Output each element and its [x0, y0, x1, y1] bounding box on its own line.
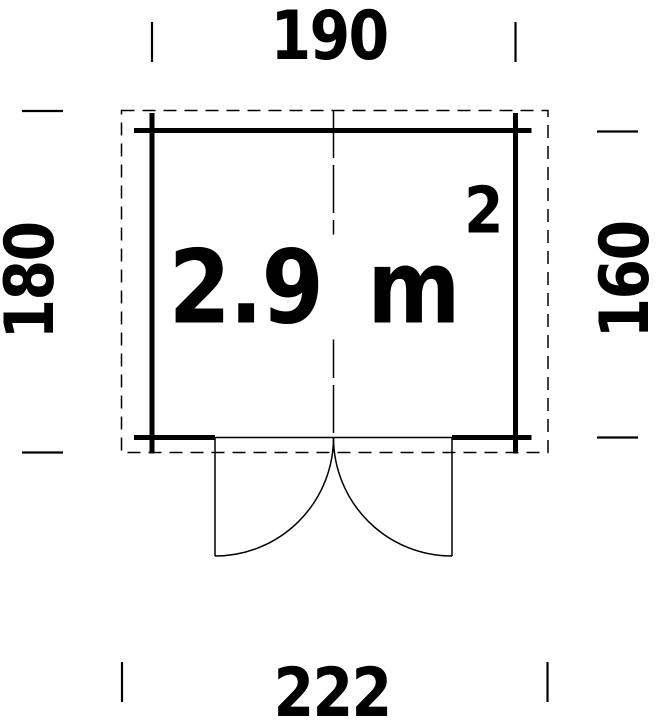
floor-area-value: 2.9: [168, 229, 322, 348]
plan-linework: [0, 0, 660, 727]
floor-plan-drawing: 190 222 180 160 2.9m2: [0, 0, 660, 727]
floor-area-label: 2.9m2: [160, 235, 513, 340]
floor-area-exponent: 2: [464, 174, 503, 249]
door-swing-arc-right: [334, 438, 453, 557]
dimension-label-bottom: 222: [274, 660, 391, 727]
door-swing-arc-left: [215, 438, 334, 557]
dimension-label-left: 180: [0, 223, 65, 340]
floor-area-unit: m: [367, 229, 459, 348]
dimension-label-top: 190: [271, 3, 388, 71]
dimension-label-right: 160: [592, 222, 660, 339]
